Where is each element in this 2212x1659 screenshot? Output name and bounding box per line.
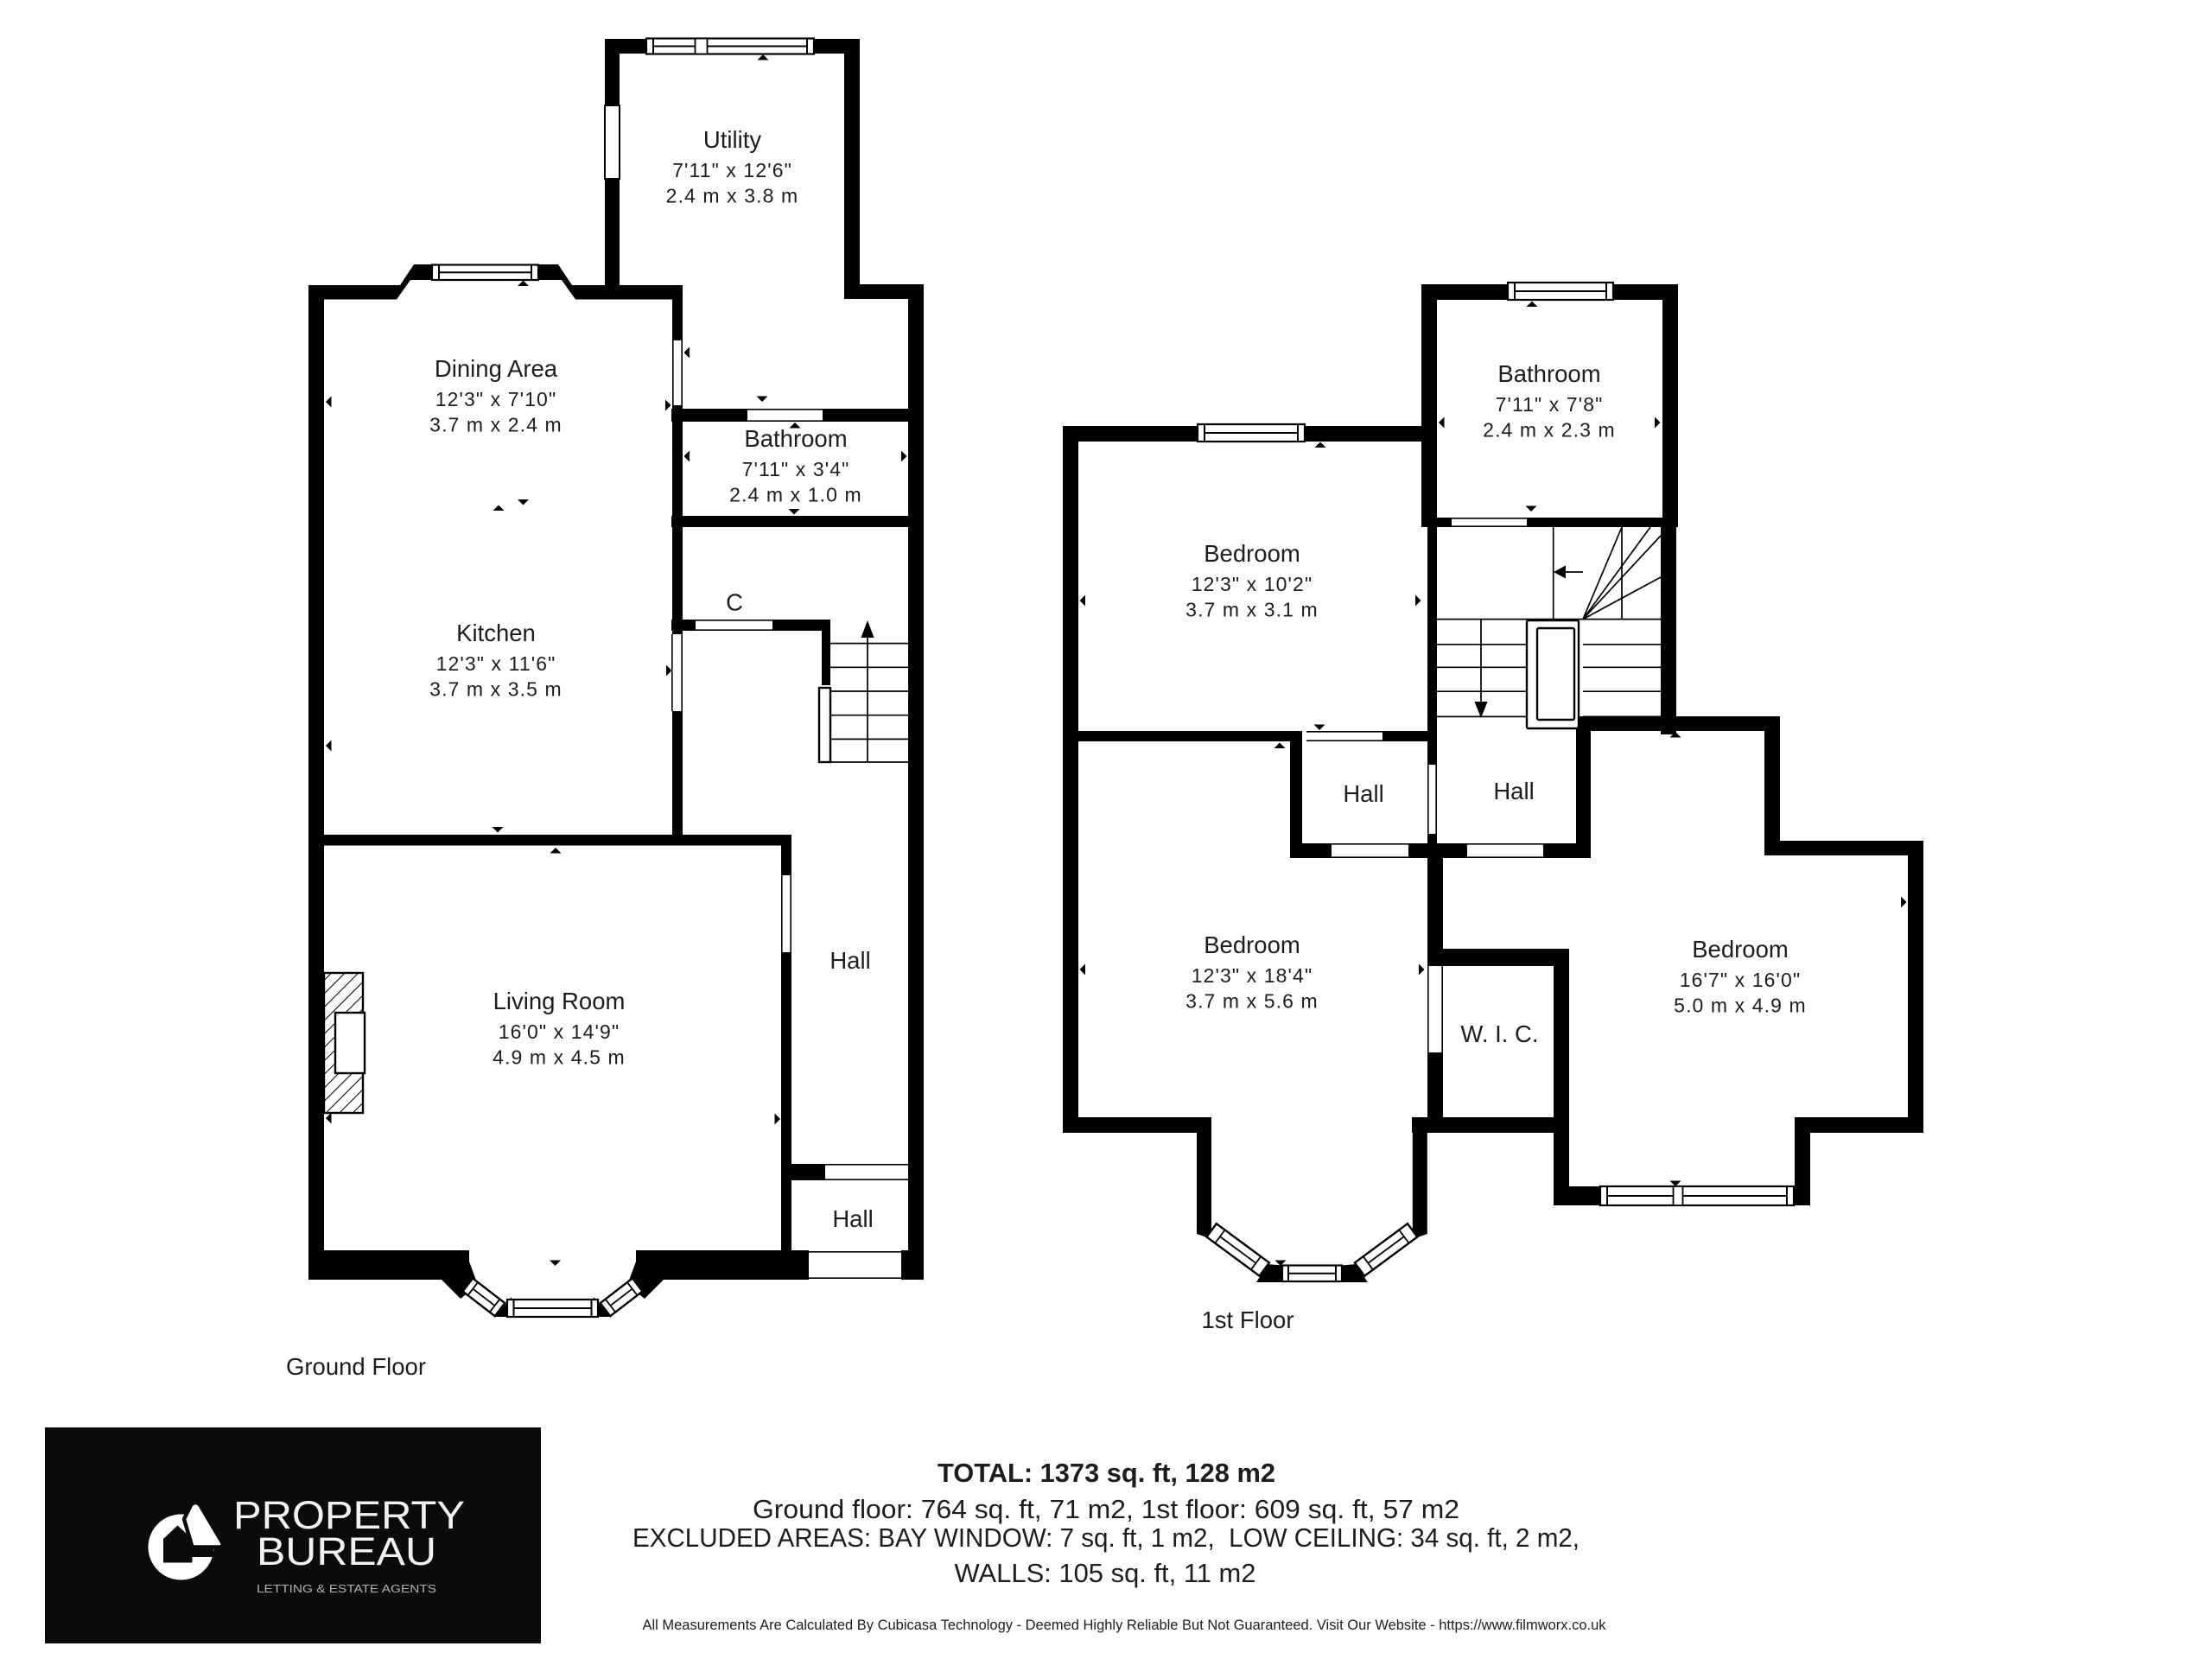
svg-text:1st Floor: 1st Floor [1202,1306,1294,1333]
svg-text:Hall: Hall [1343,780,1383,807]
svg-text:Hall: Hall [829,947,870,974]
svg-text:7'11" x 3'4": 7'11" x 3'4" [742,458,850,480]
svg-text:12'3" x 18'4": 12'3" x 18'4" [1192,964,1313,987]
svg-text:2.4 m x 2.3 m: 2.4 m x 2.3 m [1483,419,1616,442]
svg-text:3.7 m x 3.1 m: 3.7 m x 3.1 m [1185,599,1319,621]
svg-text:Hall: Hall [832,1205,873,1232]
svg-text:Bedroom: Bedroom [1204,931,1300,958]
svg-text:EXCLUDED AREAS: BAY WINDOW: 7: EXCLUDED AREAS: BAY WINDOW: 7 sq. ft, 1 … [632,1522,1580,1553]
svg-text:3.7 m x 5.6 m: 3.7 m x 5.6 m [1185,990,1319,1013]
svg-text:2.4 m x 3.8 m: 2.4 m x 3.8 m [666,185,799,207]
svg-text:Bathroom: Bathroom [1497,360,1600,387]
svg-text:Ground Floor: Ground Floor [286,1353,426,1380]
svg-text:16'0" x 14'9": 16'0" x 14'9" [499,1020,620,1043]
svg-text:3.7 m x 2.4 m: 3.7 m x 2.4 m [429,414,563,436]
svg-text:Bedroom: Bedroom [1692,936,1789,963]
svg-text:7'11" x 7'8": 7'11" x 7'8" [1496,393,1604,416]
svg-text:WALLS: 105 sq. ft, 11 m2: WALLS: 105 sq. ft, 11 m2 [955,1558,1256,1588]
svg-text:C: C [726,589,743,616]
svg-text:Utility: Utility [703,126,761,153]
svg-text:Living Room: Living Room [493,988,626,1014]
svg-text:All Measurements Are Calculate: All Measurements Are Calculated By Cubic… [643,1618,1607,1633]
svg-text:3.7 m x 3.5 m: 3.7 m x 3.5 m [429,678,563,701]
svg-text:TOTAL: 1373 sq. ft, 128 m2: TOTAL: 1373 sq. ft, 128 m2 [938,1458,1275,1488]
svg-text:W. I. C.: W. I. C. [1460,1020,1538,1047]
svg-text:Kitchen: Kitchen [456,620,536,646]
svg-text:4.9 m x 4.5 m: 4.9 m x 4.5 m [493,1046,626,1069]
svg-text:Ground floor: 764 sq. ft, 71 m: Ground floor: 764 sq. ft, 71 m2, 1st flo… [753,1494,1459,1524]
svg-text:Dining Area: Dining Area [435,355,558,382]
svg-text:Bathroom: Bathroom [744,425,847,452]
svg-text:7'11" x 12'6": 7'11" x 12'6" [672,159,792,181]
svg-text:12'3" x 7'10": 12'3" x 7'10" [435,388,556,410]
svg-text:Hall: Hall [1493,778,1534,804]
svg-text:16'7" x 16'0": 16'7" x 16'0" [1680,969,1801,991]
svg-text:Bedroom: Bedroom [1204,540,1300,567]
svg-text:5.0 m x 4.9 m: 5.0 m x 4.9 m [1674,995,1807,1017]
svg-text:BUREAU: BUREAU [257,1529,436,1573]
svg-text:2.4 m x 1.0 m: 2.4 m x 1.0 m [729,484,862,506]
svg-text:12'3" x 10'2": 12'3" x 10'2" [1192,573,1313,595]
svg-text:12'3" x 11'6": 12'3" x 11'6" [436,652,556,675]
svg-text:LETTING & ESTATE AGENTS: LETTING & ESTATE AGENTS [257,1583,436,1595]
